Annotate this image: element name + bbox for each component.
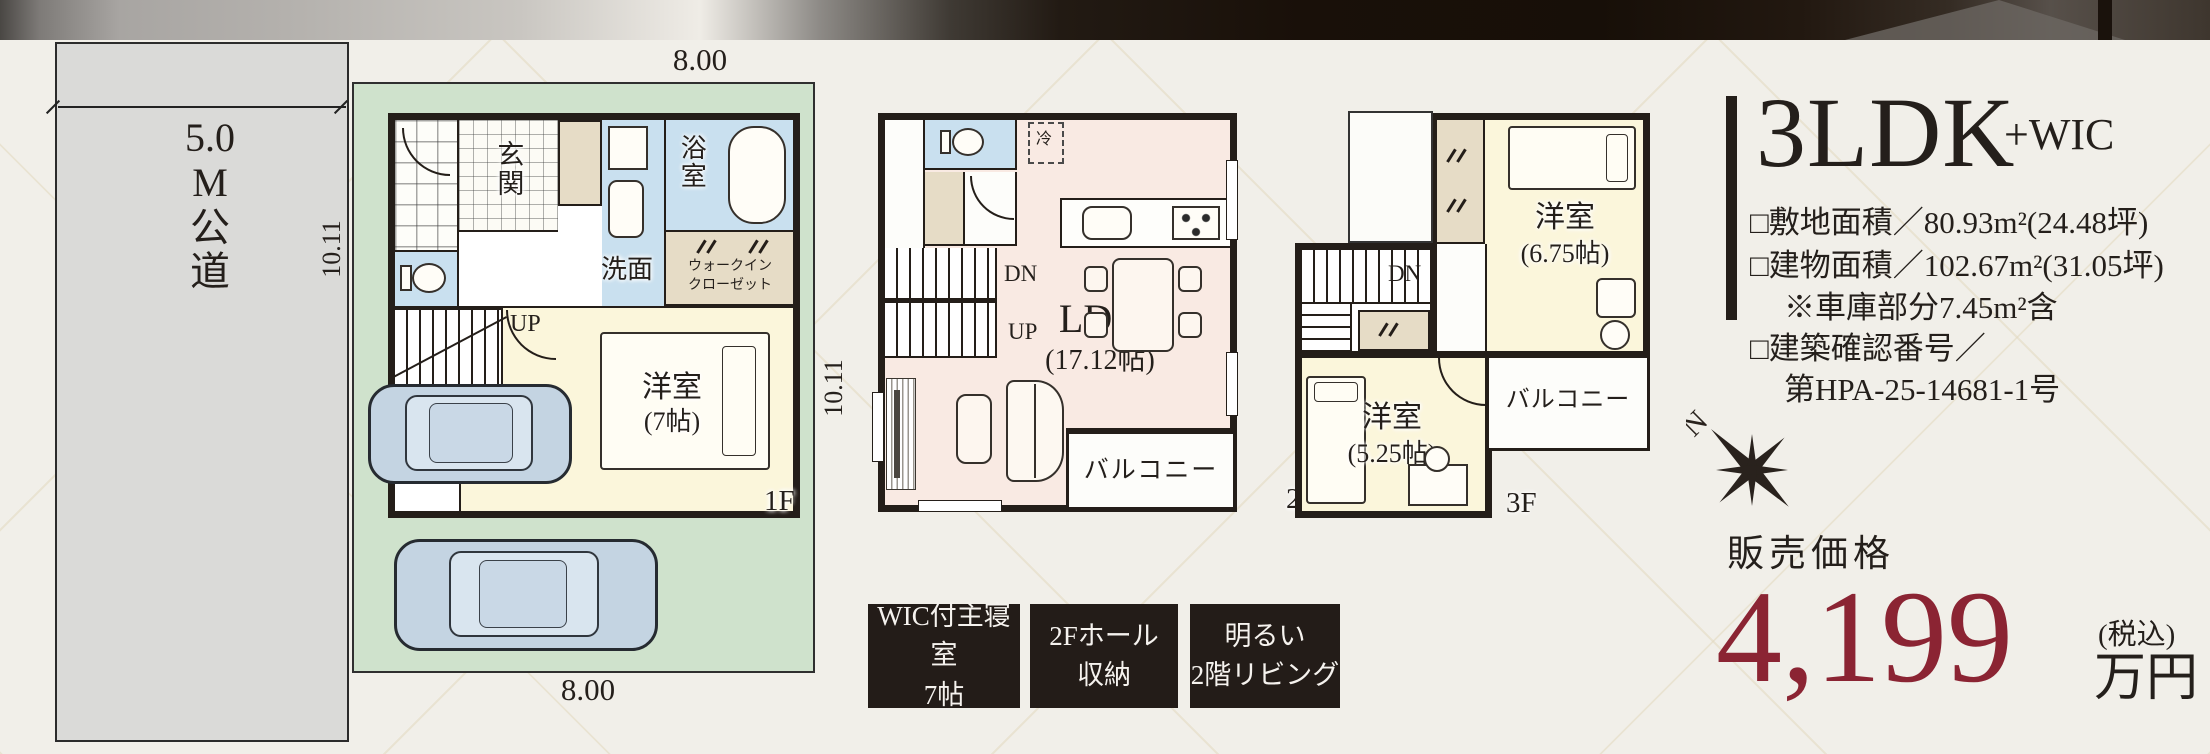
2f-toilet: [952, 128, 984, 156]
2f-void: [885, 120, 925, 248]
3f-bedroom-main-label: 洋室: [1500, 202, 1630, 234]
2f-fridge-label: 冷: [1036, 132, 1052, 149]
2f-stairs-lower: [885, 303, 997, 358]
site-width-top: 8.00: [640, 44, 760, 77]
badge-line: 2Fホール: [1030, 617, 1178, 656]
plan-type: 3LDK: [1756, 80, 2016, 185]
3f-dresser: [1596, 278, 1636, 318]
1f-washer: [608, 126, 648, 170]
1f-stairs-up-label: UP: [510, 312, 541, 337]
road-width-dimension-line: [58, 106, 346, 108]
3f-balcony-label: バルコニー: [1490, 388, 1646, 413]
site-depth-left: 10.11: [318, 204, 344, 294]
1f-wic-label: ウォークイン クローゼット: [668, 258, 792, 296]
price-amount: 4,199: [1716, 568, 2013, 707]
3f-void-roof: [1348, 111, 1433, 243]
plan-type-suffix: +WIC: [2004, 112, 2114, 158]
2f-dining-table: [1112, 258, 1174, 352]
1f-floor-label: 1F: [764, 486, 795, 516]
3f-closet: [1437, 120, 1485, 244]
3f-bedroom-second-label: 洋室: [1332, 402, 1452, 434]
2f-kitchen-sink: [1082, 206, 1132, 240]
car-compact: [368, 384, 572, 484]
price-unit: 万円: [2094, 652, 2198, 707]
photo-pole-shape: [2098, 0, 2112, 40]
2f-stairs-down-label: DN: [1004, 262, 1037, 286]
3f-chair: [1424, 446, 1450, 472]
detail-line-confirmation: □建築確認番号／: [1750, 333, 1986, 366]
1f-bedroom-size: (7帖): [612, 408, 732, 435]
2f-window-left: [872, 392, 884, 462]
3f-main-bed-pillow: [1606, 134, 1628, 182]
detail-line-confirmation-number: 第HPA-25-14681-1号: [1784, 374, 2060, 407]
compass-north-icon: N: [1686, 402, 1818, 534]
2f-window-bottom: [918, 500, 1002, 512]
2f-toilet-tank: [940, 130, 951, 154]
2f-tv-board: [886, 378, 916, 490]
detail-line-site-area: □敷地面積／80.93m²(24.48坪): [1750, 207, 2148, 240]
feature-badge-hall-storage: 2Fホール 収納: [1030, 604, 1178, 708]
badge-line: 明るい: [1190, 617, 1340, 656]
3f-floor-label: 3F: [1506, 488, 1537, 518]
badge-line: WIC付主寝室: [868, 597, 1020, 675]
1f-shoe-closet: [558, 120, 602, 206]
3f-second-bed-pillow: [1314, 382, 1358, 402]
2f-closet: [925, 172, 965, 246]
detail-line-garage-note: ※車庫部分7.45m²含: [1784, 292, 2058, 325]
badge-line: 7帖: [868, 676, 1020, 715]
feature-badge-master-bedroom: WIC付主寝室 7帖: [868, 604, 1020, 708]
site-depth-right: 10.11: [820, 343, 846, 433]
1f-stairs: [393, 308, 503, 392]
car-sedan: [394, 539, 658, 651]
3f-bedroom-main-size: (6.75帖): [1492, 240, 1638, 267]
2f-stairs-upper: [885, 248, 997, 300]
price-tax-note: (税込): [2098, 620, 2175, 650]
2f-window-right-top: [1226, 160, 1238, 240]
2f-low-table: [956, 394, 992, 464]
2f-chair: [1084, 312, 1108, 338]
3f-stairs-down-label: DN: [1388, 262, 1421, 286]
2f-chair: [1178, 266, 1202, 292]
2f-sofa-line: [1034, 384, 1036, 478]
2f-stove: [1172, 206, 1220, 240]
2f-tv: [894, 390, 900, 478]
1f-toilet-tank: [400, 265, 412, 291]
flyer-canvas: 5.0 M 公 道 8.00 8.00 10.11 10.11 玄関 洗面 浴室…: [0, 0, 2210, 754]
2f-balcony-label: バルコニー: [1070, 458, 1232, 484]
detail-line-building-area: □建物面積／102.67m²(31.05坪): [1750, 250, 2164, 283]
1f-bath-label: 浴室: [678, 134, 705, 190]
2f-chair: [1084, 266, 1108, 292]
feature-badge-bright-living: 明るい 2階リビング: [1190, 604, 1340, 708]
2f-chair: [1178, 312, 1202, 338]
photo-roof-shape: [1845, 0, 2125, 40]
3f-stool: [1600, 320, 1630, 350]
site-width-bottom: 8.00: [528, 674, 648, 707]
3f-hall: [1437, 244, 1487, 351]
svg-text:N: N: [1686, 404, 1714, 443]
top-photo-band: [0, 0, 2210, 40]
badge-line: 2階リビング: [1190, 656, 1340, 695]
2f-window-right-mid: [1226, 352, 1238, 416]
summary-accent-bar: [1726, 96, 1737, 320]
1f-genkan-label: 玄関: [494, 140, 522, 198]
badge-line: 収納: [1030, 656, 1178, 695]
3f-stairs-winder: [1302, 304, 1352, 351]
1f-bedroom-label: 洋室: [612, 372, 732, 404]
1f-toilet: [412, 263, 446, 293]
1f-sink: [608, 180, 644, 238]
road-label: 5.0 M 公 道: [150, 116, 270, 295]
1f-bathtub: [728, 126, 786, 224]
1f-wash-label: 洗面: [601, 256, 653, 283]
